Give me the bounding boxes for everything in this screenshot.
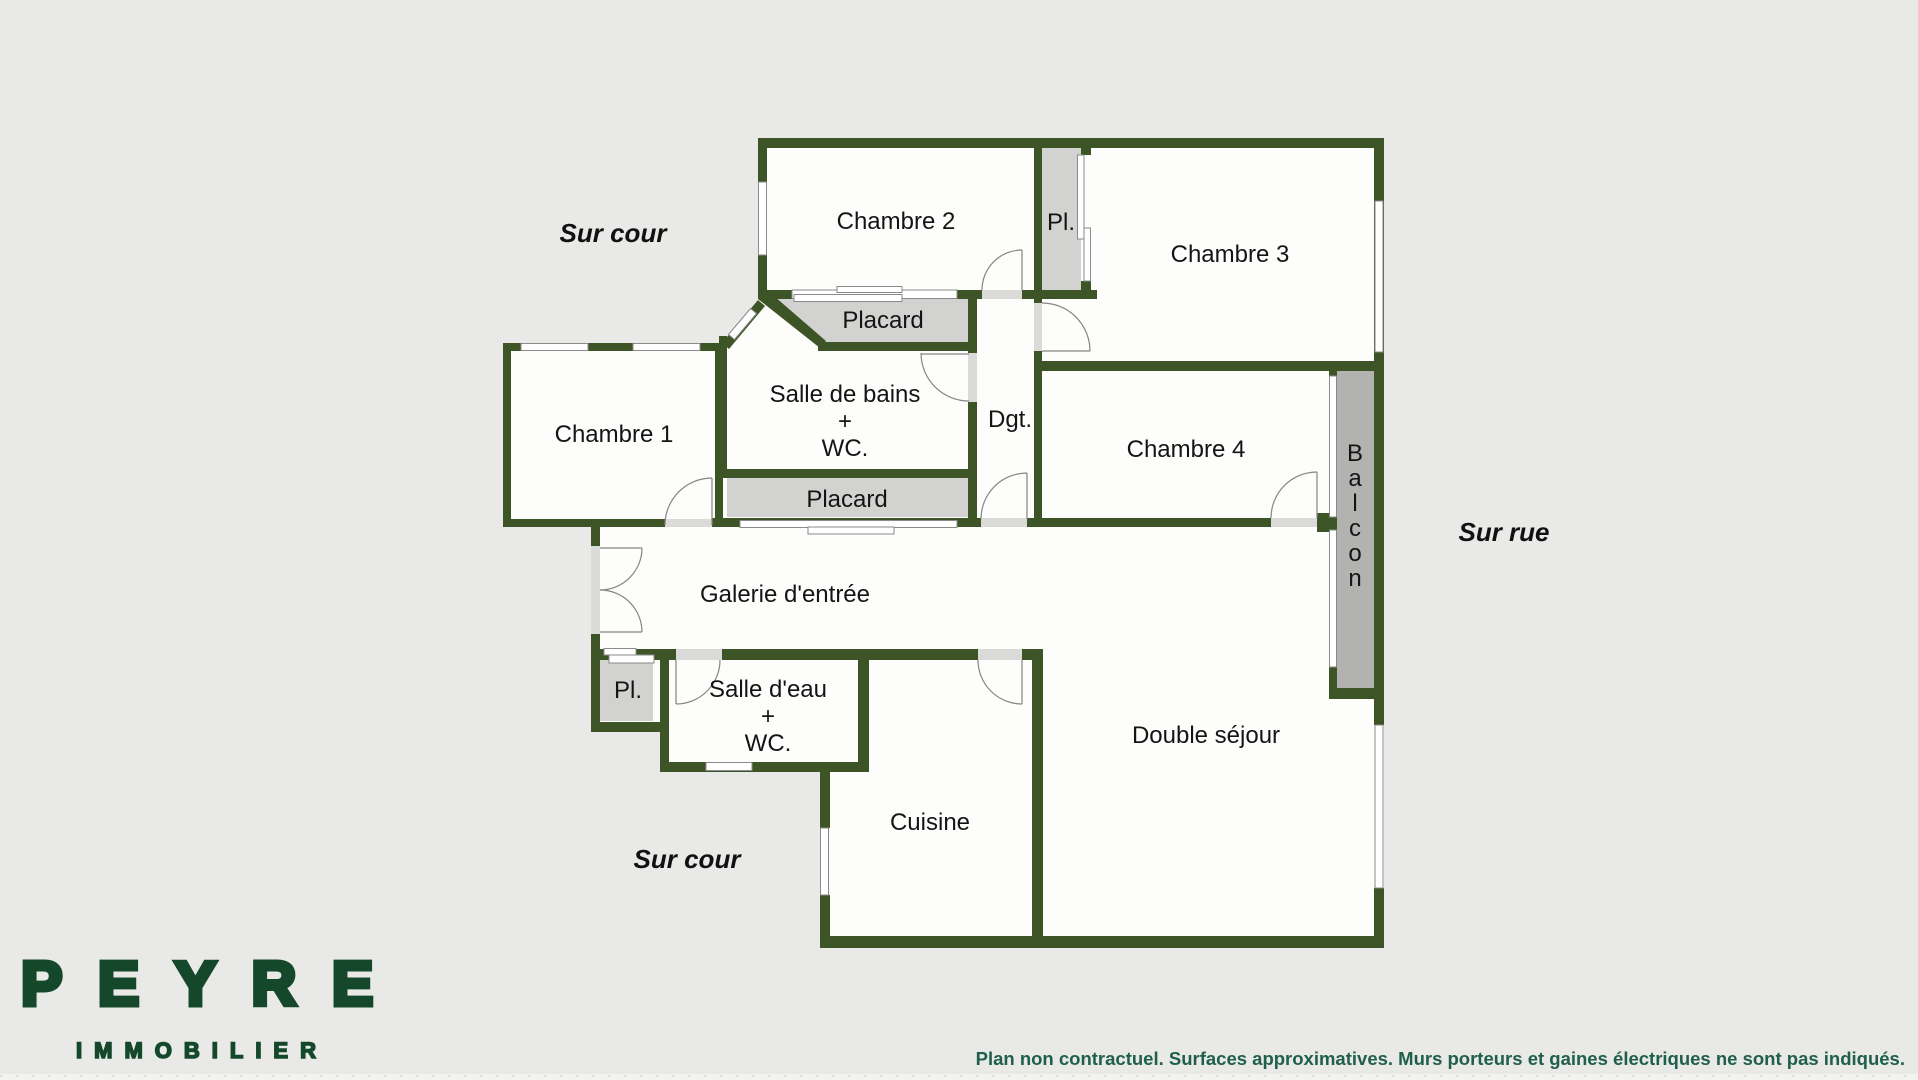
svg-text:Chambre 1: Chambre 1 [555, 421, 674, 448]
svg-text:Sur cour: Sur cour [634, 844, 743, 874]
svg-text:Sur cour: Sur cour [560, 218, 669, 248]
svg-text:Cuisine: Cuisine [890, 809, 970, 836]
svg-text:Chambre 3: Chambre 3 [1171, 241, 1290, 268]
svg-text:Chambre 4: Chambre 4 [1127, 436, 1246, 463]
svg-text:Salle d'eau: Salle d'eau [709, 676, 827, 703]
svg-text:n: n [1348, 565, 1361, 592]
svg-text:a: a [1348, 465, 1362, 492]
svg-text:Galerie d'entrée: Galerie d'entrée [700, 581, 870, 608]
svg-text:Pl.: Pl. [614, 677, 642, 704]
svg-text:B: B [1347, 440, 1363, 467]
svg-text:+: + [761, 703, 775, 730]
svg-text:Salle de bains: Salle de bains [770, 381, 921, 408]
svg-text:Placard: Placard [842, 307, 923, 334]
svg-text:l: l [1352, 490, 1357, 517]
svg-text:Dgt.: Dgt. [988, 406, 1032, 433]
svg-text:Double séjour: Double séjour [1132, 722, 1280, 749]
svg-text:WC.: WC. [822, 435, 869, 462]
svg-text:o: o [1348, 540, 1361, 567]
svg-text:IMMOBILIER: IMMOBILIER [76, 1038, 328, 1063]
svg-text:Sur rue: Sur rue [1458, 517, 1549, 547]
svg-text:Chambre 2: Chambre 2 [837, 208, 956, 235]
svg-text:Placard: Placard [806, 486, 887, 513]
svg-text:+: + [838, 408, 852, 435]
svg-text:PEYRE: PEYRE [21, 950, 409, 1019]
svg-text:WC.: WC. [745, 730, 792, 757]
svg-text:Pl.: Pl. [1047, 209, 1075, 236]
svg-text:Plan non contractuel. Surfaces: Plan non contractuel. Surfaces approxima… [976, 1048, 1905, 1069]
svg-text:c: c [1349, 515, 1361, 542]
